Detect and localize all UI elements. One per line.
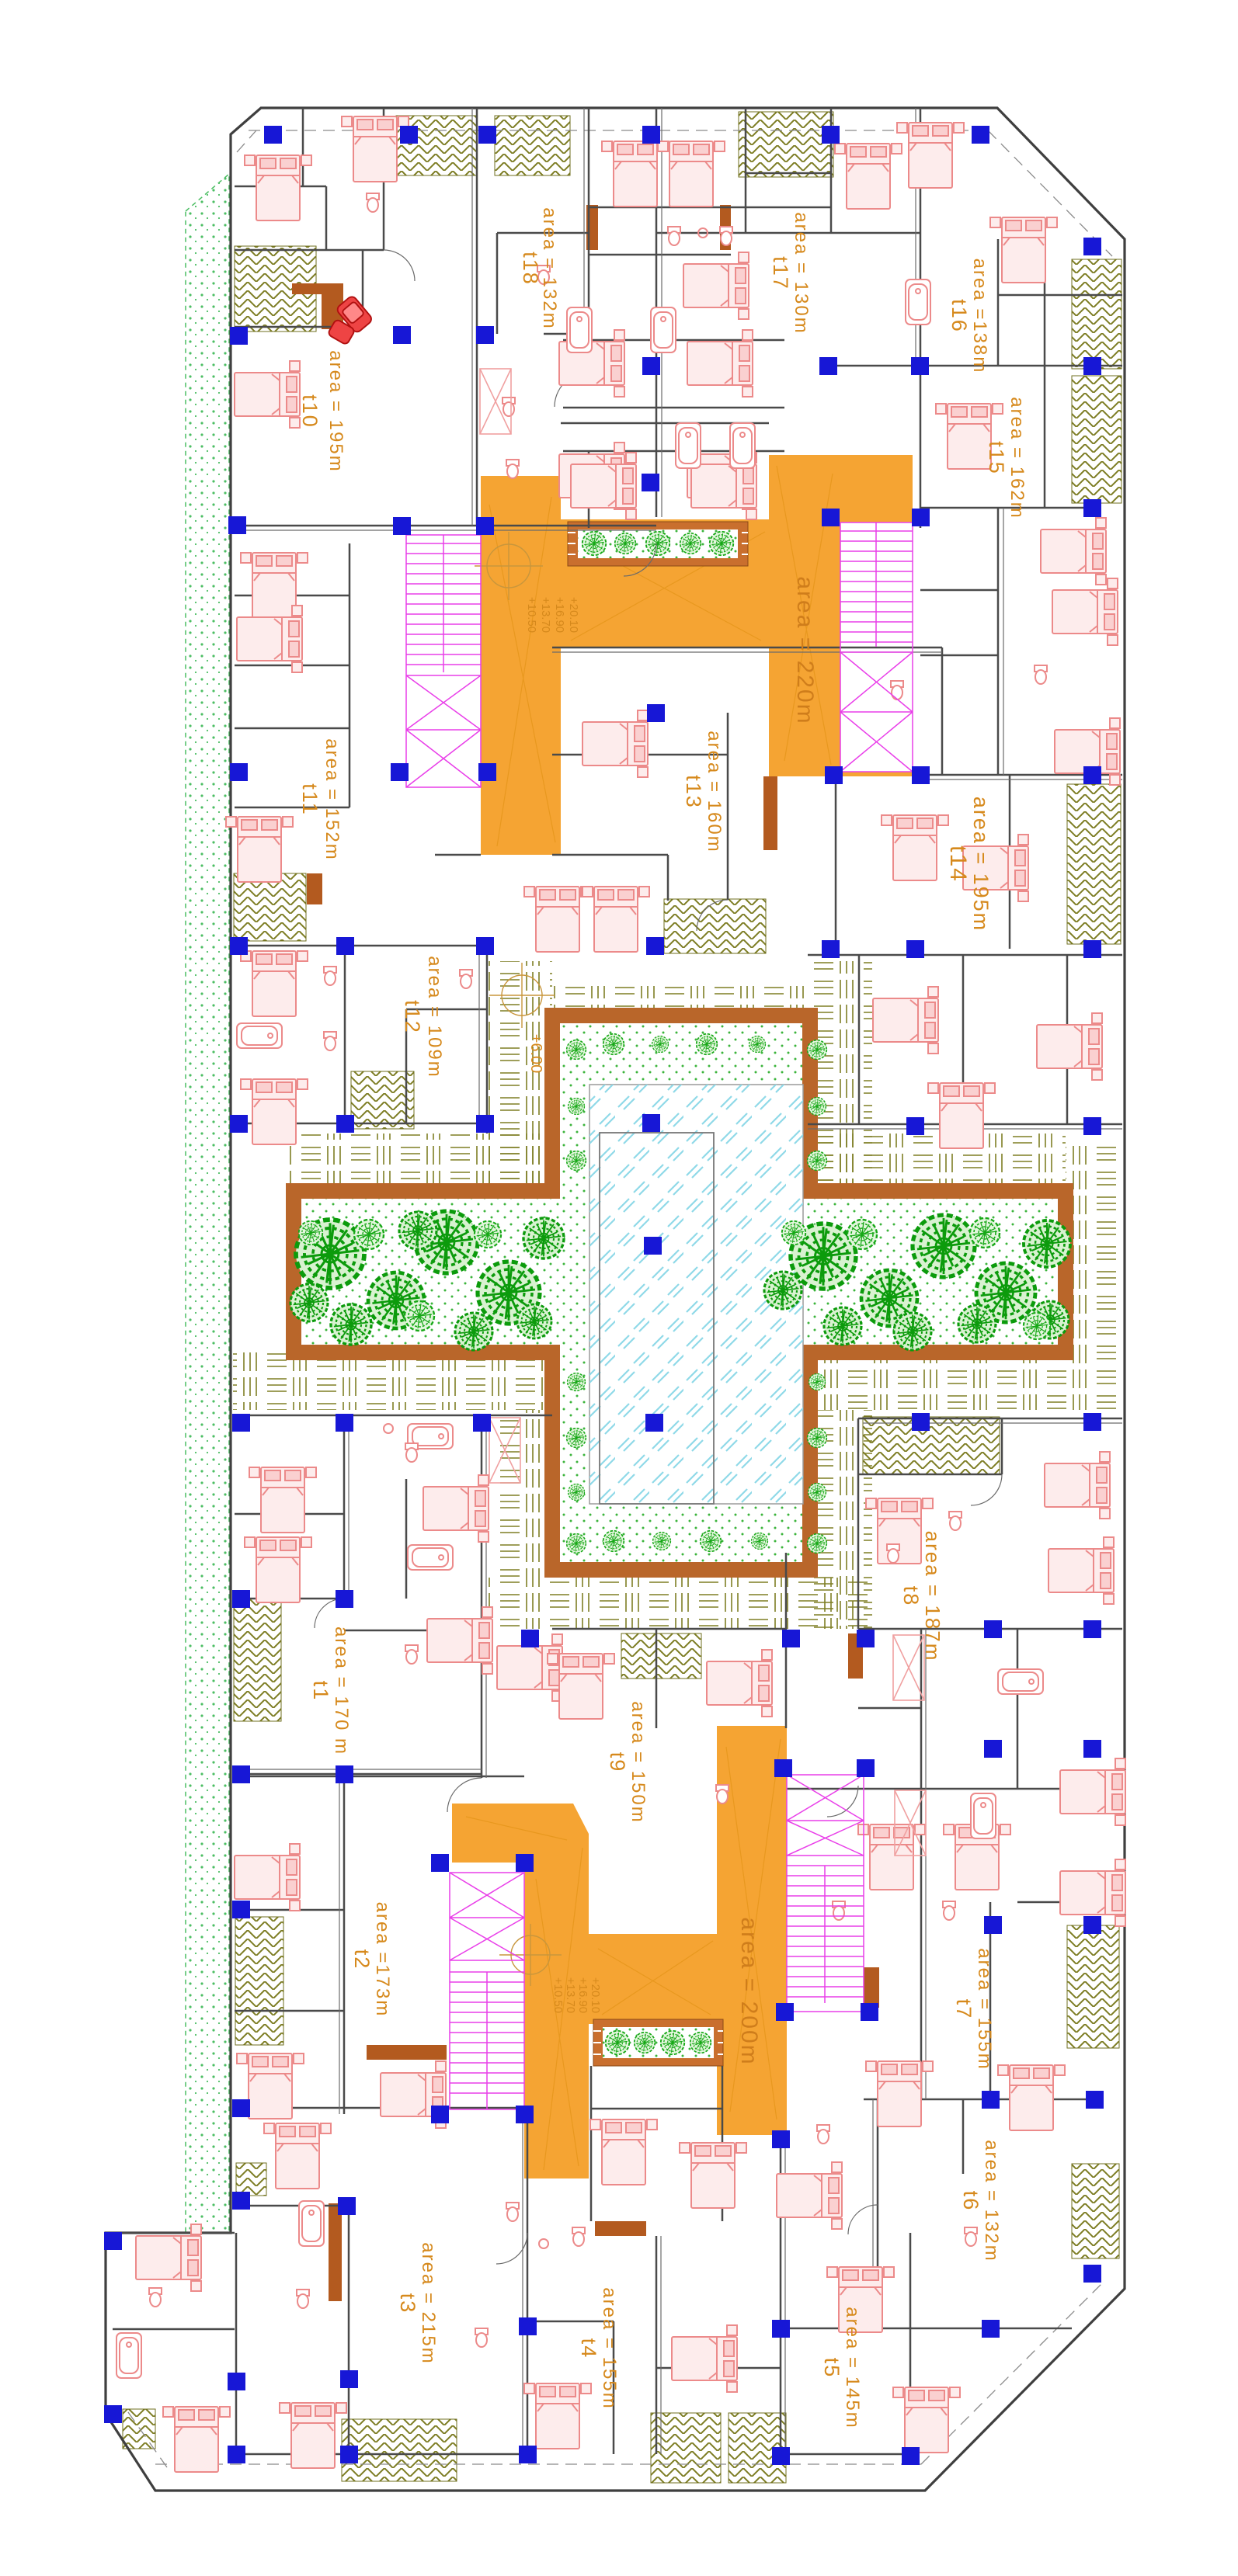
svg-text:area = 187m: area = 187m: [921, 1531, 944, 1662]
svg-text:t6: t6: [959, 2191, 982, 2212]
svg-text:area = 220m: area = 220m: [792, 576, 818, 724]
svg-text:area = 152m: area = 152m: [322, 738, 343, 860]
svg-text:area = 160m: area = 160m: [704, 731, 725, 852]
svg-text:area = 195m: area = 195m: [969, 797, 993, 932]
svg-text:t14: t14: [945, 845, 971, 883]
svg-text:+13.70: +13.70: [539, 597, 552, 633]
svg-text:+20.10: +20.10: [567, 597, 580, 633]
svg-text:+10.50: +10.50: [551, 1977, 565, 2013]
svg-text:t2: t2: [350, 1949, 374, 1970]
svg-text:area = 145m: area = 145m: [842, 2307, 863, 2428]
svg-text:t13: t13: [682, 775, 705, 809]
svg-text:+16.90: +16.90: [553, 597, 566, 633]
svg-text:t18: t18: [519, 252, 542, 286]
svg-text:area = 200m: area = 200m: [736, 1917, 762, 2065]
svg-text:t7: t7: [952, 1999, 975, 2020]
svg-text:area = 109m: area = 109m: [424, 956, 445, 1078]
svg-text:t12: t12: [401, 1000, 424, 1034]
svg-text:area = 170 m: area = 170 m: [331, 1626, 352, 1755]
svg-text:t10: t10: [298, 394, 322, 429]
svg-text:area = 162m: area = 162m: [1007, 397, 1028, 519]
svg-text:+20.10: +20.10: [589, 1977, 602, 2013]
svg-text:t16: t16: [948, 299, 971, 333]
svg-text:t8: t8: [899, 1586, 923, 1607]
svg-text:+16.90: +16.90: [576, 1977, 589, 2013]
svg-text:area =138m: area =138m: [969, 259, 990, 374]
svg-text:+6.00: +6.00: [527, 1034, 544, 1074]
svg-text:area = 150m: area = 150m: [628, 1701, 649, 1823]
svg-text:t1: t1: [309, 1681, 332, 1702]
svg-text:area =173m: area =173m: [372, 1902, 393, 2018]
svg-text:area = 130m: area = 130m: [791, 212, 812, 334]
svg-text:t5: t5: [820, 2358, 843, 2379]
svg-text:area = 132m: area = 132m: [981, 2140, 1002, 2262]
svg-text:area = 215m: area = 215m: [418, 2242, 439, 2364]
svg-text:t15: t15: [985, 441, 1008, 475]
svg-text:area = 155m: area = 155m: [974, 1948, 995, 2070]
svg-text:+13.70: +13.70: [564, 1977, 577, 2013]
svg-text:area = 155m: area = 155m: [599, 2287, 620, 2409]
svg-text:+10.50: +10.50: [525, 597, 538, 633]
svg-text:t9: t9: [606, 1752, 629, 1773]
svg-text:t17: t17: [769, 256, 792, 290]
svg-text:t3: t3: [396, 2293, 419, 2314]
svg-text:t11: t11: [298, 783, 322, 816]
svg-text:t4: t4: [577, 2338, 600, 2359]
svg-text:area = 195m: area = 195m: [325, 350, 346, 472]
